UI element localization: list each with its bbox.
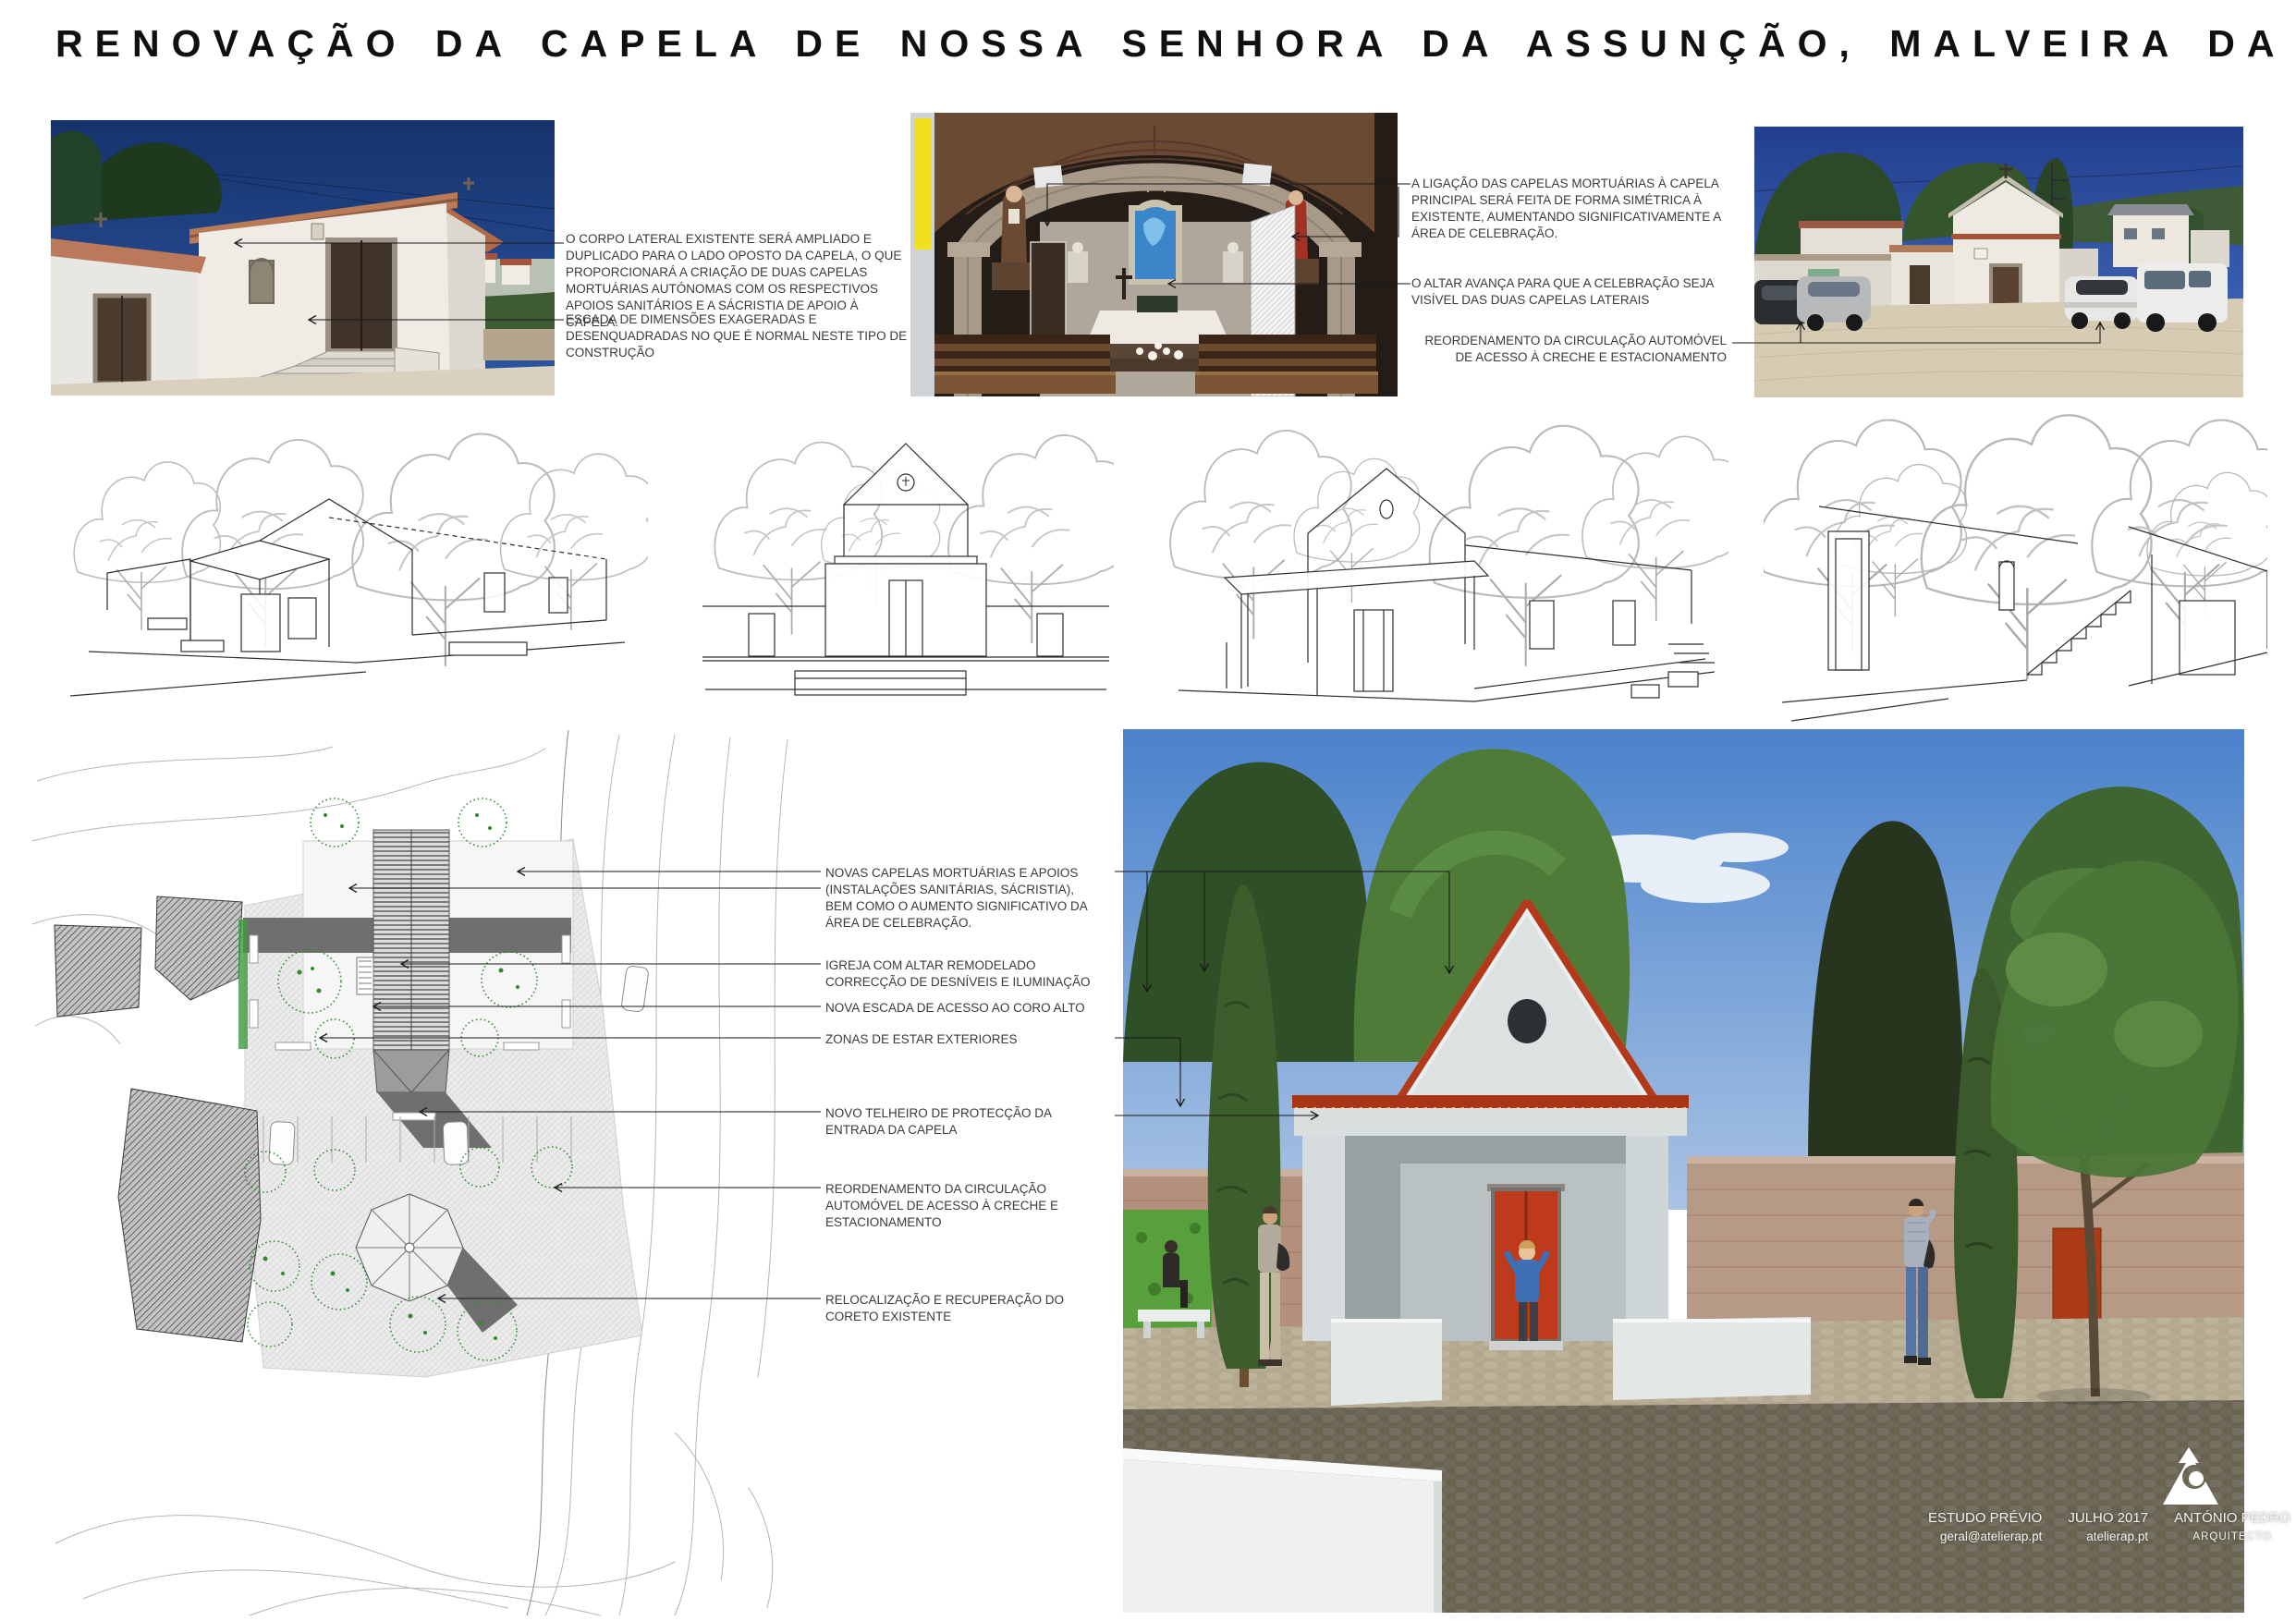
architect-name: ANTÓNIO PEDRO: [2174, 1509, 2290, 1528]
photo-chapel-square: [1754, 127, 2243, 397]
porch-pier-left: [1302, 1136, 1345, 1341]
sketch-courtyard: [1764, 407, 2267, 730]
door-step: [1489, 1341, 1563, 1350]
plaque: [311, 224, 324, 239]
architect-logo: [2161, 1447, 2220, 1506]
annotation-choir-stair: NOVA ESCADA DE ACESSO AO CORO ALTO: [825, 1000, 1105, 1017]
photo-chapel-exterior-scene: [51, 120, 555, 396]
phase-label: ESTUDO PRÉVIO: [1928, 1509, 2042, 1528]
porch-fascia: [1294, 1108, 1687, 1136]
sketch-trees: [74, 434, 648, 666]
porch-pier-right: [1626, 1136, 1668, 1341]
logo-circle: [2189, 1471, 2204, 1486]
stone-wall: [483, 329, 555, 360]
render-view: [1123, 729, 2244, 1613]
hedge-strip: [238, 920, 248, 1049]
plan-annotations: NOVAS CAPELAS MORTUÁRIAS E APOIOS (INSTA…: [825, 0, 1105, 1621]
sketch-building: [70, 499, 625, 696]
website: atelierap.pt: [2068, 1528, 2148, 1546]
sketch-trees: [1170, 426, 1728, 666]
photo-chapel-exterior: [51, 120, 555, 396]
hatched-buildings: [55, 896, 261, 1342]
cars-left: [1754, 276, 1871, 331]
foreground-white-wall: [1123, 1448, 1442, 1613]
issue-date: JULHO 2017: [2068, 1509, 2148, 1528]
site-plan: [28, 730, 795, 1621]
annotation-new-chapels: NOVAS CAPELAS MORTUÁRIAS E APOIOS (INSTA…: [825, 865, 1105, 932]
footer-architect: ANTÓNIO PEDRO ARQUITECTO: [2174, 1509, 2290, 1546]
sketch-building: [1782, 506, 2267, 721]
annotation-canopy: NOVO TELHEIRO DE PROTECÇÃO DA ENTRADA DA…: [825, 1105, 1105, 1139]
sketch-perspective-left: [52, 420, 648, 702]
annotation-altar: O ALTAR AVANÇA PARA QUE A CELEBRAÇÃO SEJ…: [1411, 275, 1746, 309]
interior-annotations: A LIGAÇÃO DAS CAPELAS MORTUÁRIAS À CAPEL…: [1411, 0, 1746, 397]
arched-window: [250, 259, 274, 303]
parapet-right: [1613, 1317, 1811, 1400]
street-car: [621, 966, 649, 1013]
annotation-outdoor-areas: ZONAS DE ESTAR EXTERIORES: [825, 1031, 1105, 1048]
contact-email: geral@atelierap.pt: [1928, 1528, 2042, 1546]
porch-tile-edge: [1292, 1095, 1689, 1108]
parapet-left: [1331, 1321, 1442, 1406]
architect-title: ARQUITECTO: [2174, 1528, 2290, 1546]
footer-phase: ESTUDO PRÉVIO geral@atelierap.pt: [1928, 1509, 2042, 1546]
lectern: [1137, 296, 1178, 312]
footer-date: JULHO 2017 atelierap.pt: [2068, 1509, 2148, 1546]
annotation-traffic: REORDENAMENTO DA CIRCULAÇÃO AUTOMÓVEL DE…: [1411, 333, 1727, 366]
page-title: RENOVAÇÃO DA CAPELA DE NOSSA SENHORA DA …: [55, 22, 2296, 66]
photo-chapel-square-scene: [1754, 127, 2243, 397]
oculus: [1508, 999, 1546, 1043]
annotation-circulation: REORDENAMENTO DA CIRCULAÇÃO AUTOMÓVEL DE…: [825, 1181, 1105, 1231]
render-scene: [1123, 729, 2244, 1613]
annotation-bandstand: RELOCALIZAÇÃO E RECUPERAÇÃO DO CORETO EX…: [825, 1292, 1105, 1325]
annotation-church-altar: IGREJA COM ALTAR REMODELADO CORRECÇÃO DE…: [825, 957, 1105, 991]
speaker-right: [1242, 163, 1272, 186]
footer: ESTUDO PRÉVIO geral@atelierap.pt JULHO 2…: [1928, 1509, 2290, 1546]
sketch-perspective-right: [1169, 411, 1728, 730]
tree-left-2: [51, 131, 102, 226]
sketch-building: [1179, 469, 1715, 701]
presentation-board: RENOVAÇÃO DA CAPELA DE NOSSA SENHORA DA …: [0, 0, 2296, 1621]
annotation-mortuary-link: A LIGAÇÃO DAS CAPELAS MORTUÁRIAS À CAPEL…: [1411, 176, 1746, 242]
stained-glass-window: [1129, 200, 1182, 285]
